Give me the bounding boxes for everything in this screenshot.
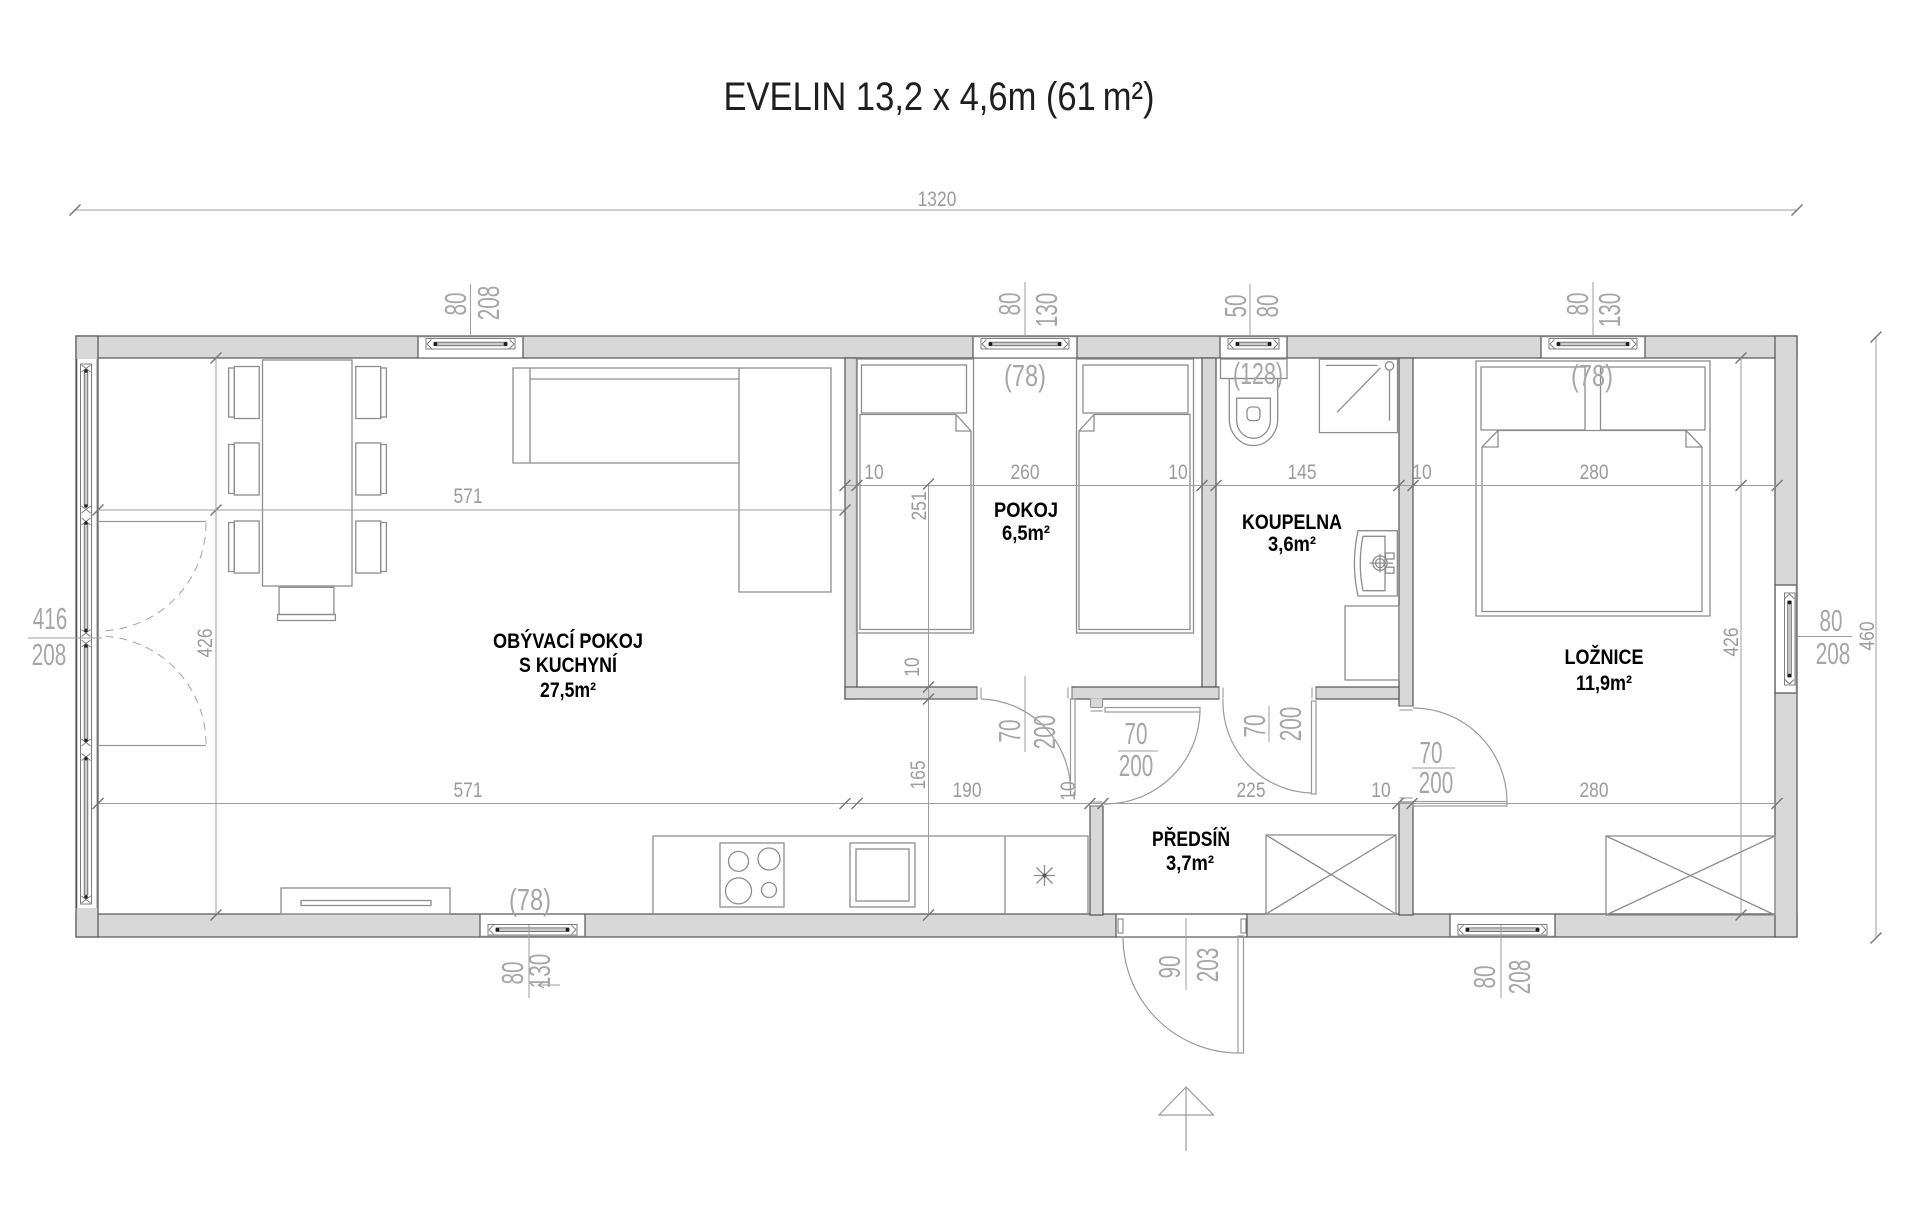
svg-text:PŘEDSÍŇ: PŘEDSÍŇ <box>1152 827 1230 851</box>
svg-text:165: 165 <box>907 760 930 789</box>
svg-text:1320: 1320 <box>918 188 957 211</box>
svg-text:70: 70 <box>1237 715 1272 738</box>
svg-text:50: 50 <box>1218 295 1253 318</box>
svg-text:280: 280 <box>1579 461 1608 484</box>
svg-text:130: 130 <box>1029 293 1064 328</box>
svg-text:POKOJ: POKOJ <box>994 499 1058 522</box>
svg-text:(78): (78) <box>1004 358 1046 393</box>
svg-text:200: 200 <box>1419 765 1454 800</box>
svg-text:130: 130 <box>522 954 557 989</box>
svg-text:251: 251 <box>908 491 931 520</box>
svg-text:190: 190 <box>952 779 981 802</box>
svg-text:80: 80 <box>992 293 1027 316</box>
svg-text:10: 10 <box>1371 779 1390 802</box>
svg-text:80: 80 <box>438 293 473 316</box>
svg-text:80: 80 <box>1250 295 1285 318</box>
svg-text:208: 208 <box>471 286 506 321</box>
svg-text:130: 130 <box>1592 293 1627 328</box>
svg-text:(128): (128) <box>1233 356 1283 391</box>
svg-text:3,6m²: 3,6m² <box>1268 533 1316 556</box>
svg-text:10: 10 <box>1412 461 1431 484</box>
svg-text:200: 200 <box>1027 715 1062 750</box>
svg-text:571: 571 <box>453 779 482 802</box>
svg-text:10: 10 <box>864 461 883 484</box>
svg-text:27,5m²: 27,5m² <box>540 679 596 702</box>
svg-text:426: 426 <box>194 628 217 657</box>
svg-text:416: 416 <box>33 601 68 636</box>
svg-text:80: 80 <box>1560 293 1595 316</box>
svg-text:426: 426 <box>1720 627 1743 656</box>
svg-text:280: 280 <box>1579 779 1608 802</box>
svg-text:571: 571 <box>453 485 482 508</box>
svg-text:LOŽNICE: LOŽNICE <box>1565 645 1644 669</box>
svg-text:70: 70 <box>992 720 1027 743</box>
svg-text:200: 200 <box>1119 748 1154 783</box>
svg-text:460: 460 <box>1856 621 1879 650</box>
svg-text:208: 208 <box>1816 636 1851 671</box>
svg-text:10: 10 <box>1168 461 1187 484</box>
svg-text:(78): (78) <box>509 882 551 917</box>
svg-text:200: 200 <box>1273 707 1308 742</box>
svg-text:OBÝVACÍ POKOJ: OBÝVACÍ POKOJ <box>493 629 643 653</box>
svg-text:208: 208 <box>1502 960 1537 995</box>
svg-text:11,9m²: 11,9m² <box>1576 672 1632 695</box>
svg-text:EVELIN 13,2 x 4,6m (61 m²): EVELIN 13,2 x 4,6m (61 m²) <box>724 75 1155 119</box>
svg-text:80: 80 <box>1467 966 1502 989</box>
svg-text:10: 10 <box>901 657 924 676</box>
svg-text:S KUCHYNÍ: S KUCHYNÍ <box>519 654 618 677</box>
svg-text:(78): (78) <box>1571 358 1613 393</box>
svg-text:225: 225 <box>1236 779 1265 802</box>
svg-text:145: 145 <box>1287 461 1316 484</box>
svg-text:90: 90 <box>1152 956 1187 979</box>
svg-text:3,7m²: 3,7m² <box>1166 852 1214 875</box>
svg-text:203: 203 <box>1190 948 1225 983</box>
svg-text:260: 260 <box>1010 461 1039 484</box>
svg-text:80: 80 <box>1820 603 1843 638</box>
svg-text:208: 208 <box>32 637 67 672</box>
svg-text:KOUPELNA: KOUPELNA <box>1242 511 1342 534</box>
svg-text:10: 10 <box>1057 781 1080 800</box>
svg-text:6,5m²: 6,5m² <box>1002 522 1050 545</box>
svg-text:70: 70 <box>1125 716 1148 751</box>
